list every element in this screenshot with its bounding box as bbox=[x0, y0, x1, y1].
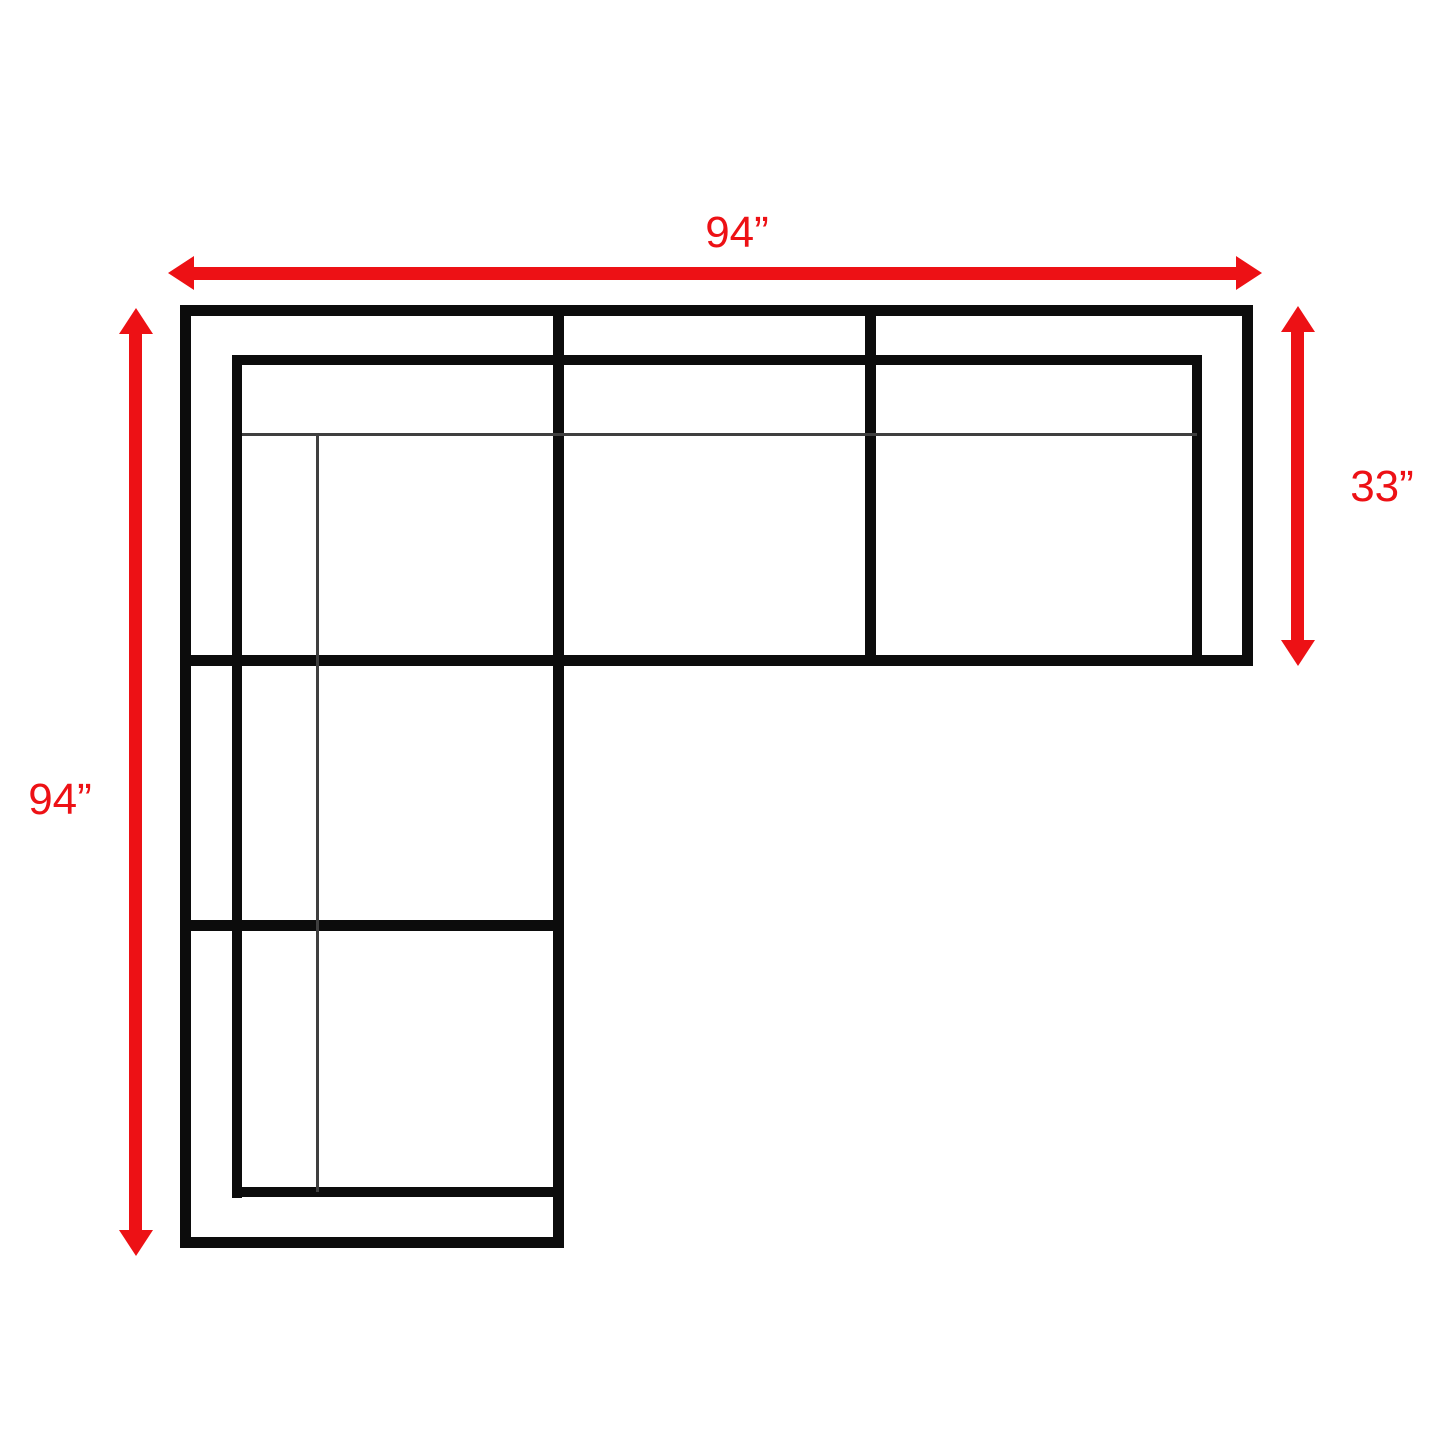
arrowhead-down-icon bbox=[119, 1230, 153, 1256]
backrest-inner-top-edge bbox=[232, 355, 1202, 365]
sofa-outer-left-edge bbox=[180, 305, 191, 1248]
arrowhead-right-icon bbox=[1236, 256, 1262, 290]
chaise-right-edge bbox=[553, 305, 564, 1248]
dimension-top-width-label: 94” bbox=[657, 211, 817, 255]
sofa-dimension-diagram: 94” 94” 33” bbox=[0, 0, 1445, 1445]
sofa-seat-front-edge-horizontal bbox=[180, 655, 1253, 666]
dimension-left-height-label: 94” bbox=[5, 778, 115, 822]
bottom-arm-inner-edge bbox=[232, 1187, 564, 1197]
sofa-right-arm-outer-edge bbox=[1242, 305, 1253, 666]
dimension-top-width-line bbox=[188, 267, 1242, 280]
dimension-left-height-line bbox=[129, 330, 142, 1234]
sofa-outer-top-edge bbox=[180, 305, 1253, 316]
dimension-right-depth-label: 33” bbox=[1307, 465, 1445, 509]
dimension-right-depth-line bbox=[1291, 328, 1304, 644]
chaise-bottom-outer-edge bbox=[180, 1237, 564, 1248]
seat-cushion-line-horizontal bbox=[242, 433, 1197, 436]
right-arm-inner-edge bbox=[1192, 355, 1202, 666]
seat-cushion-line-vertical bbox=[316, 433, 319, 1192]
arrowhead-down-icon bbox=[1281, 640, 1315, 666]
backrest-inner-left-edge bbox=[232, 355, 242, 1198]
